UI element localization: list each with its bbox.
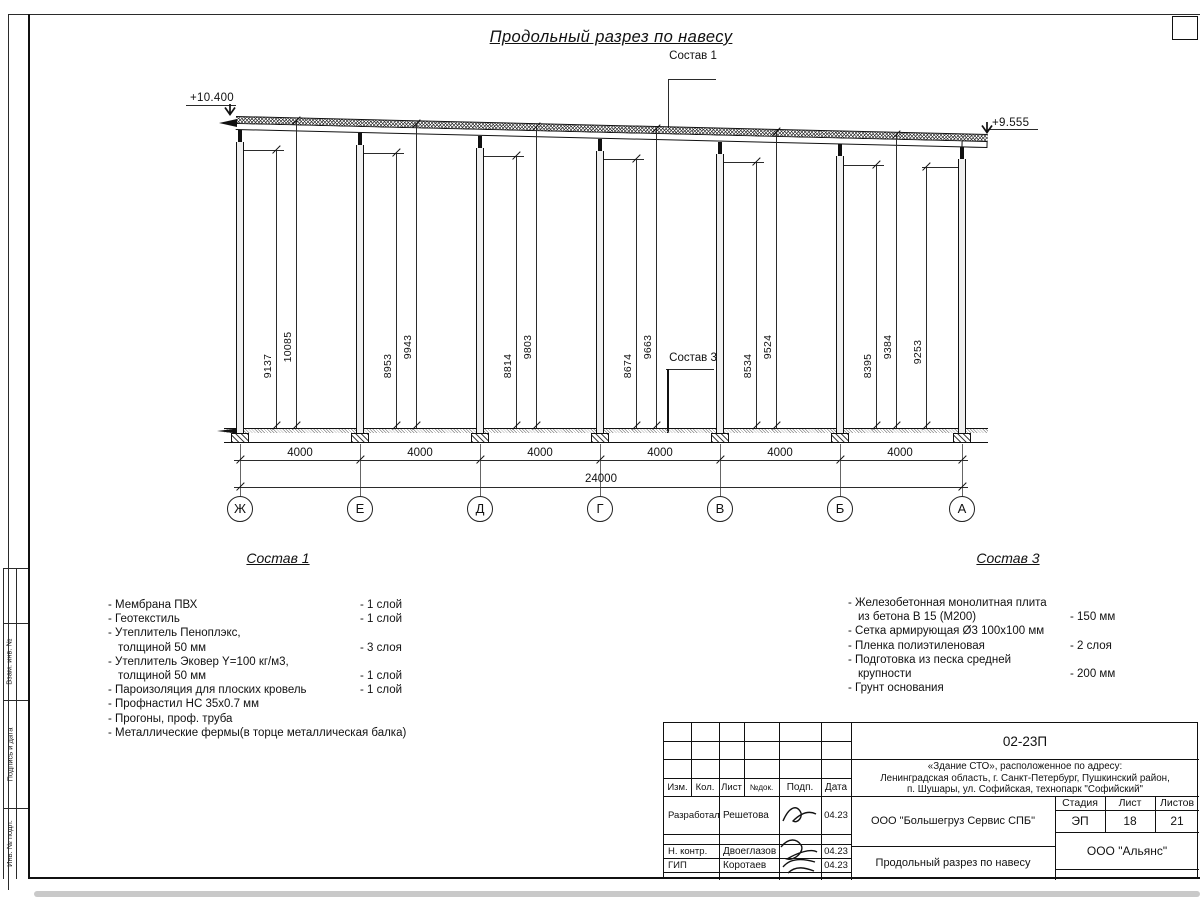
axis-extension-line [962,444,963,497]
person-role: Разработал [665,796,722,834]
sheet-label: Лист [1105,796,1155,810]
axis-bubble: А [949,496,975,522]
rev-col-data: Дата [821,778,851,796]
column [356,145,364,433]
bay-dim-label: 4000 [740,447,820,459]
dim-line [876,165,877,428]
column [716,154,724,433]
list-item: - Сетка армирующая Ø3 100х100 мм [848,624,1148,638]
axis-extension-line [840,444,841,497]
bay-height-dim: 8674 [622,331,634,401]
bay-dim-label: 4000 [620,447,700,459]
dim-line [416,124,417,428]
margin-field-vzam: Взам. инв. № [3,623,16,700]
company-cell: ООО "Большегруз Сервис СПБ" [851,796,1055,846]
person-name: Двоеглазов [720,844,782,858]
elevation-right-value: +9.555 [992,117,1040,129]
item-qty: - 3 слоя [360,641,438,655]
sheet-edge-shadow [34,891,1200,897]
dim-row-line [234,460,968,461]
list-item: - Геотекстиль- 1 слой [108,612,438,626]
item-qty: - 2 слоя [1070,639,1148,653]
axis-bubble: В [707,496,733,522]
total-dim-label: 24000 [551,473,651,485]
dim-line [296,121,297,428]
column [836,156,844,433]
dim-line [536,127,537,428]
item-name: - Геотекстиль [108,612,360,626]
item-name: - Сетка армирующая Ø3 100х100 мм [848,624,1070,638]
list-item: - Профнастил НС 35х0.7 мм [108,697,438,711]
title-block-line [664,741,851,742]
axis-extension-line [240,444,241,497]
person-date: 04.23 [821,858,851,872]
sostav3-list: - Железобетонная монолитная плита из бет… [848,596,1148,695]
dim-line [516,156,517,428]
margin-field-label: Взам. инв. № [5,638,14,684]
drawing-name-cell: Продольный разрез по навесу [851,846,1055,880]
item-name: - Мембрана ПВХ [108,598,360,612]
frame-left-line [28,14,30,879]
bay-dim-label: 4000 [380,447,460,459]
axis-bubble: Д [467,496,493,522]
person-name: Коротаев [720,858,782,872]
dim-shelf-line [484,156,524,157]
dim-line [896,135,897,428]
axis-bubble: Е [347,496,373,522]
dim-line [636,159,637,428]
list-item: из бетона В 15 (М200)- 150 мм [848,610,1148,624]
list-item: - Утеплитель Эковер Y=100 кг/м3, [108,655,438,669]
dim-shelf-line [844,165,884,166]
canopy-roof [236,116,988,148]
margin-box-line [3,568,28,569]
dim-shelf-line [604,159,644,160]
bay-dim-label: 4000 [500,447,580,459]
dim-line [926,167,927,428]
item-qty: - 1 слой [360,598,438,612]
bay-height-dim: 9253 [912,317,924,387]
list-item: - Утеплитель Пеноплэкс, [108,626,438,640]
rev-col-list: Лист [719,778,744,796]
person-name: Решетова [720,796,782,834]
dim-shelf-line [244,150,284,151]
column [958,159,966,433]
sheets-label: Листов [1155,796,1199,810]
item-name: - Профнастил НС 35х0.7 мм [108,697,360,711]
item-name: - Пароизоляция для плоских кровель [108,683,360,697]
bay-height-dim: 9524 [762,312,774,382]
dim-line [276,150,277,428]
roof-right-end-cap [961,140,987,148]
list-item: толщиной 50 мм- 1 слой [108,669,438,683]
margin-field-label: Подпись и дата [5,727,14,781]
sostav1-list: - Мембрана ПВХ- 1 слой - Геотекстиль- 1 … [108,598,438,740]
list-item: - Прогоны, проф. труба [108,712,438,726]
sostav3-heading: Состав 3 [960,550,1056,566]
corner-stamp-box [1172,16,1198,40]
column-footing [711,433,729,443]
item-qty [1070,624,1148,638]
drawing-title: Продольный разрез по навесу [461,28,761,47]
title-block-line [664,759,1199,760]
rev-col-kol: Кол. [691,778,719,796]
list-item: толщиной 50 мм- 3 слоя [108,641,438,655]
bay-height-dim: 9663 [642,312,654,382]
title-block-line [1055,869,1199,870]
bay-height-dim: 9384 [882,312,894,382]
item-name: - Подготовка из песка средней [848,653,1070,667]
person-date: 04.23 [821,844,851,858]
doc-number: 02-23П [851,723,1199,759]
sheet-outer-top-line [8,14,1200,15]
person-date: 04.23 [821,796,851,834]
sheets-value: 21 [1155,810,1199,832]
dim-line [776,132,777,428]
item-name: крупности [848,667,1070,681]
axis-extension-line [600,444,601,497]
item-qty [1070,596,1148,610]
rev-col-izm: Изм. [664,778,691,796]
elevation-right-arrow-icon [981,122,993,134]
item-qty: - 200 мм [1070,667,1148,681]
column [596,151,604,433]
item-qty [1070,681,1148,695]
axis-bubble: Г [587,496,613,522]
dim-shelf-line [922,167,958,168]
title-block: Изм. Кол. Лист №док. Подп. Дата 02-23П «… [663,722,1198,879]
person-role: ГИП [665,858,722,872]
bay-height-dim: 8953 [382,331,394,401]
title-block-line [664,872,851,873]
item-qty [1070,653,1148,667]
list-item: - Железобетонная монолитная плита [848,596,1148,610]
drawing-sheet: Взам. инв. № Подпись и дата Инв. № подл.… [0,0,1200,900]
dim-line [756,162,757,428]
item-qty: - 1 слой [360,683,438,697]
item-name: - Пленка полиэтиленовая [848,639,1070,653]
elevation-right-underline [988,129,1038,130]
elevation-left-value: +10.400 [184,92,234,104]
item-qty [360,626,438,640]
axis-extension-line [720,444,721,497]
list-item: - Мембрана ПВХ- 1 слой [108,598,438,612]
dim-shelf-line [724,162,764,163]
margin-field-inv: Инв. № подл. [3,808,16,879]
sostav3-leader-line [667,369,669,433]
list-item: - Пленка полиэтиленовая- 2 слоя [848,639,1148,653]
bay-height-dim: 9137 [262,331,274,401]
column-footing [471,433,489,443]
sostav1-heading: Состав 1 [228,550,328,566]
item-name: - Утеплитель Эковер Y=100 кг/м3, [108,655,360,669]
axis-extension-line [360,444,361,497]
rev-col-podp: Подп. [779,778,821,796]
margin-box-line [16,568,17,879]
item-name: из бетона В 15 (М200) [848,610,1070,624]
signature [776,835,822,879]
bay-height-dim: 8395 [862,331,874,401]
bay-height-dim: 9803 [522,312,534,382]
item-name: - Утеплитель Пеноплэкс, [108,626,360,640]
bay-height-dim: 9943 [402,312,414,382]
object-address: «Здание СТО», расположенное по адресу: Л… [853,761,1197,796]
address-line: п. Шушары, ул. Софийская, технопарк "Соф… [853,784,1197,796]
title-block-line [664,834,851,835]
elevation-left-arrow-icon [224,104,236,116]
item-name: толщиной 50 мм [108,641,360,655]
bay-dim-label: 4000 [260,447,340,459]
item-name: толщиной 50 мм [108,669,360,683]
margin-field-podpis: Подпись и дата [3,700,16,808]
column-footing [351,433,369,443]
item-name: - Грунт основания [848,681,1070,695]
sostav1-leader-line [668,79,716,80]
column [236,142,244,433]
roof-left-end-wedge [219,119,237,127]
list-item: - Пароизоляция для плоских кровель- 1 сл… [108,683,438,697]
signature [781,801,819,831]
margin-field-label: Инв. № подл. [5,820,14,867]
dim-line [396,153,397,428]
item-name: - Железобетонная монолитная плита [848,596,1070,610]
address-line: Ленинградская область, г. Санкт-Петербур… [853,773,1197,785]
stage-value: ЭП [1055,810,1105,832]
sheet-value: 18 [1105,810,1155,832]
axis-bubble: Ж [227,496,253,522]
sostav3-leader-line [666,369,714,370]
item-qty [406,726,438,740]
bay-dim-label: 4000 [860,447,940,459]
axis-extension-line [480,444,481,497]
item-name: - Металлические фермы(в торце металличес… [108,726,406,740]
column-footing [231,433,249,443]
column-footing [591,433,609,443]
stage-label: Стадия [1055,796,1105,810]
item-qty [360,655,438,669]
bay-height-dim: 8534 [742,331,754,401]
sostav1-leader-line [668,79,669,128]
person-role: Н. контр. [665,844,722,858]
address-line: «Здание СТО», расположенное по адресу: [853,761,1197,773]
dim-row-line [234,487,968,488]
org-cell: ООО "Альянс" [1055,832,1199,869]
dim-line [656,129,657,428]
sostav1-leader-label: Состав 1 [664,50,722,62]
dim-shelf-line [364,153,404,154]
item-qty: - 150 мм [1070,610,1148,624]
bay-height-dim: 8814 [502,331,514,401]
list-item: - Металлические фермы(в торце металличес… [108,726,438,740]
column [476,148,484,433]
bay-height-dim: 10085 [282,312,294,382]
item-qty [360,712,438,726]
rev-col-ndok: №док. [744,778,779,796]
item-qty [360,697,438,711]
item-qty: - 1 слой [360,669,438,683]
list-item: - Подготовка из песка средней [848,653,1148,667]
axis-bubble: Б [827,496,853,522]
item-qty: - 1 слой [360,612,438,626]
column-footing [953,433,971,443]
list-item: - Грунт основания [848,681,1148,695]
list-item: крупности- 200 мм [848,667,1148,681]
column-footing [831,433,849,443]
item-name: - Прогоны, проф. труба [108,712,360,726]
sostav3-leader-label: Состав 3 [664,352,722,364]
